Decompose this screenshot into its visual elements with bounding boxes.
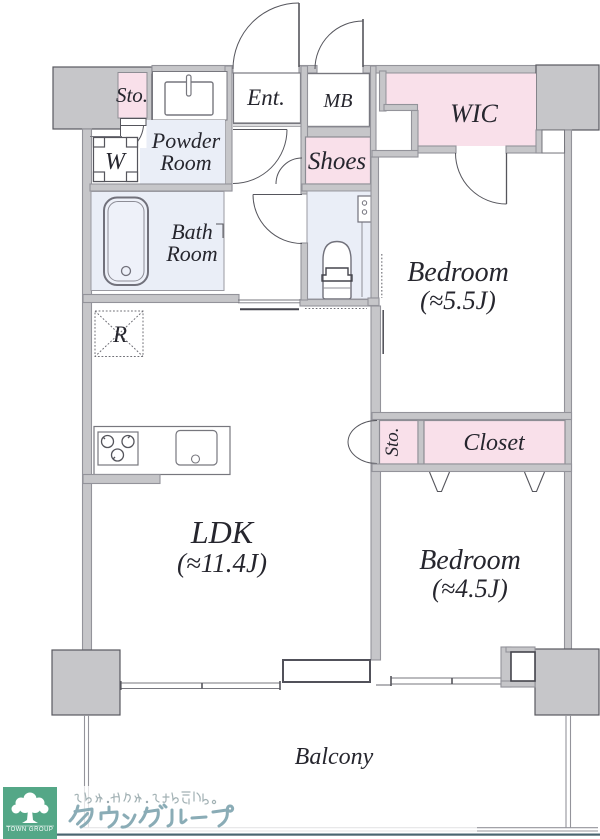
svg-text:Shoes: Shoes (308, 148, 366, 175)
svg-text:(≈11.4J): (≈11.4J) (177, 548, 267, 578)
svg-text:LDK: LDK (190, 514, 255, 550)
svg-text:(≈5.5J): (≈5.5J) (420, 286, 496, 315)
svg-text:R: R (112, 322, 127, 347)
svg-text:Room: Room (159, 150, 211, 175)
svg-text:Bedroom: Bedroom (419, 545, 521, 576)
svg-text:W: W (105, 149, 127, 175)
svg-text:WIC: WIC (450, 99, 498, 128)
svg-text:Balcony: Balcony (295, 744, 374, 770)
svg-text:Sto.: Sto. (382, 427, 403, 456)
svg-text:Ent.: Ent. (246, 85, 285, 110)
svg-text:Bedroom: Bedroom (407, 257, 509, 288)
svg-text:MB: MB (323, 90, 353, 112)
svg-text:Room: Room (165, 241, 217, 266)
svg-text:(≈4.5J): (≈4.5J) (432, 574, 508, 603)
svg-text:TOWN GROUP: TOWN GROUP (7, 827, 54, 833)
svg-text:Closet: Closet (463, 430, 526, 456)
svg-text:Sto.: Sto. (116, 83, 148, 107)
